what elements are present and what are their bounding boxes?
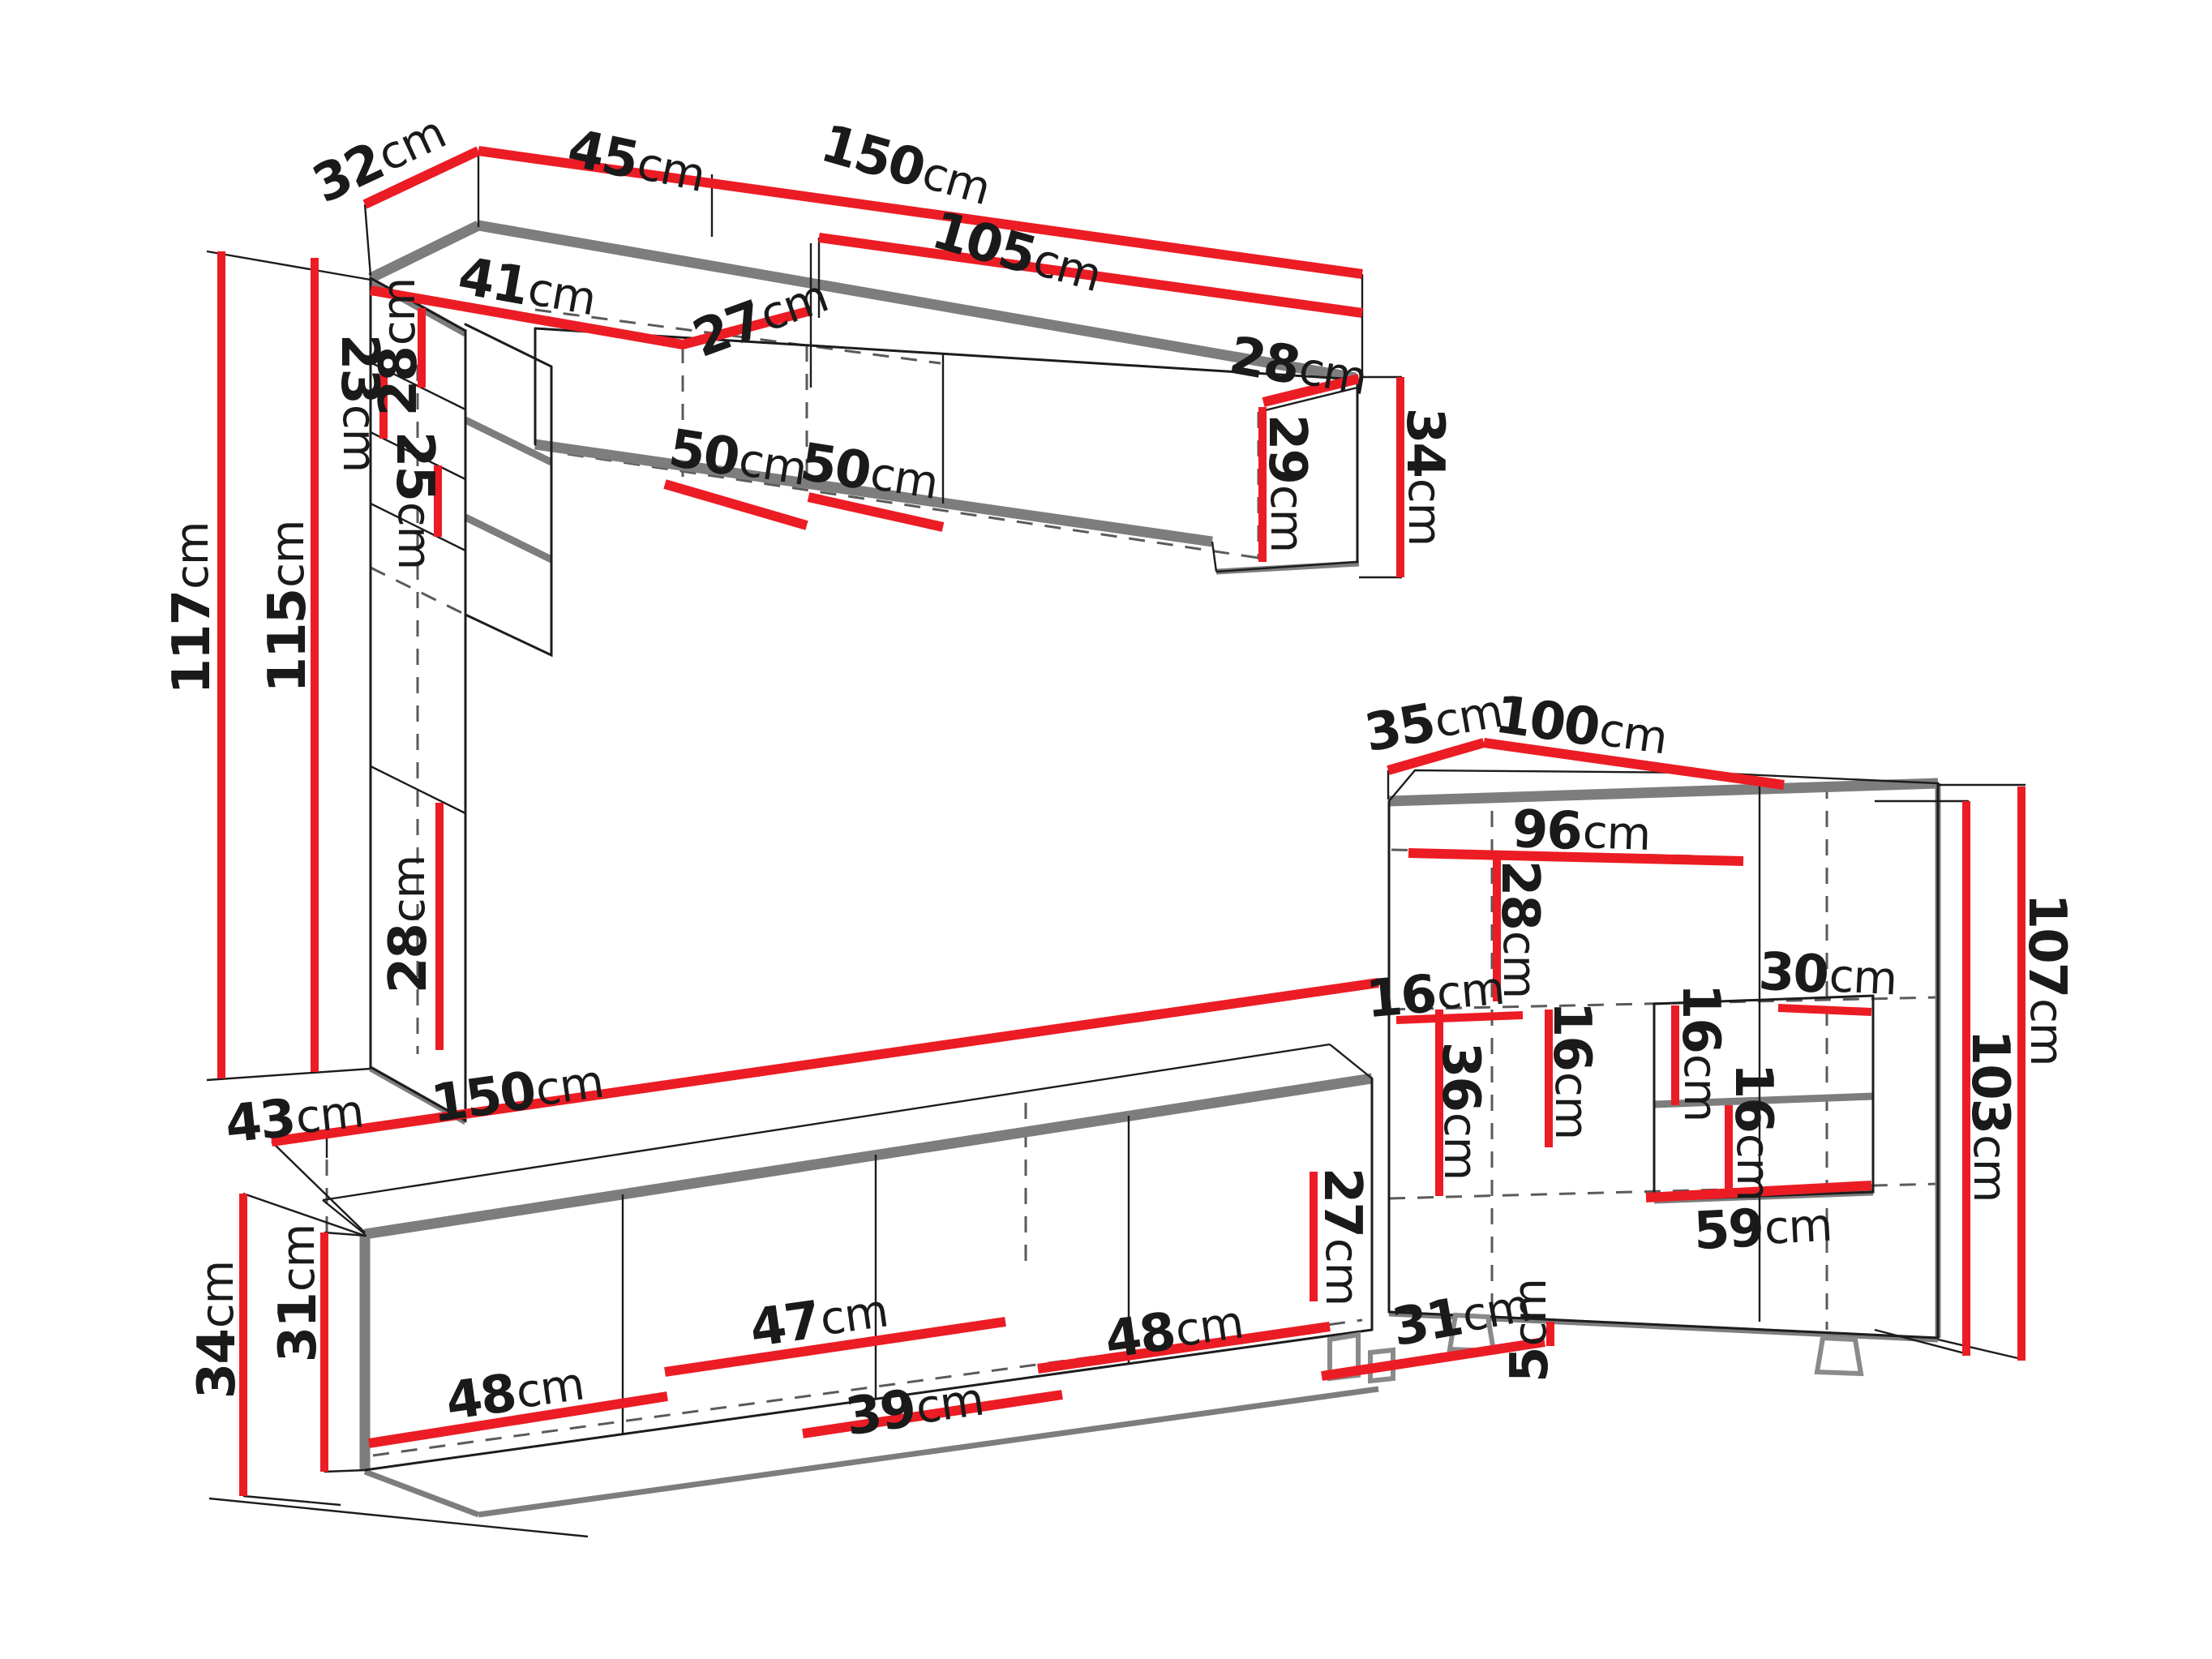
dimension-label-t27: 27cm [1312,1168,1372,1305]
dimension-value: 48 [442,1363,519,1432]
dimension-value: 45 [563,118,643,191]
dimension-unit: cm [333,405,386,472]
dimension-value: 41 [454,246,533,318]
edge-line [207,251,371,280]
dimension-label-t48a: 48cm [442,1354,587,1433]
dimension-unit: cm [388,502,441,569]
dimension-value: 27 [1312,1168,1372,1237]
dimension-unit: cm [912,1373,987,1434]
tv-stand [209,983,1393,1537]
dimension-label-w115: 115cm [258,521,318,693]
dimension-value: 31 [1388,1288,1467,1359]
dimension-unit: cm [867,447,941,509]
dimension-unit: cm [1596,703,1670,765]
dimension-value: 39 [842,1378,919,1447]
edge-line [365,204,371,276]
dimension-unit: cm [1964,1134,2017,1202]
dimension-value: 5 [1500,1348,1560,1382]
dimension-label-t34: 34cm [187,1261,247,1399]
dimension-value: 30 [1757,942,1829,1005]
dimension-label-d59: 59cm [1692,1195,1833,1262]
dimension-label-t150: 150cm [427,1052,607,1135]
dimension-value: 28 [1490,860,1550,929]
dimension-label-d35: 35cm [1361,681,1507,764]
dimension-unit: cm [817,1284,891,1346]
dimension-value: 34 [1395,408,1455,477]
dimension-unit: cm [166,522,219,589]
dimension-unit: cm [383,855,435,923]
dimension-unit: cm [1727,1134,1780,1201]
dimension-value: 16 [1723,1063,1783,1132]
dimension-unit: cm [1316,1238,1369,1305]
dimension-value: 150 [427,1061,538,1134]
edge-line [209,1498,588,1537]
dimension-unit: cm [1582,806,1652,861]
dimension-value: 34 [187,1330,247,1399]
dimension-unit: cm [1763,1198,1833,1254]
dimension-value: 31 [268,1293,328,1362]
dimension-value: 107 [2017,894,2077,997]
display-cabinet [1322,743,2026,1376]
dimension-unit: cm [2021,998,2073,1065]
dimension-value: 47 [746,1290,823,1359]
dimension-label-t47: 47cm [746,1281,891,1360]
edge-line [1875,1330,1968,1354]
dimension-line [1778,1008,1871,1012]
shadow-edge-line [365,1472,478,1515]
dimension-unit: cm [272,1224,325,1292]
dimension-value: 16 [1364,964,1438,1030]
dimension-unit: cm [532,1055,607,1117]
wall-unit-hidden-edges [371,310,1258,1054]
diagram-canvas: 32cm45cm150cm105cm41cm27cm28cm23cm25cm28… [0,0,2212,1659]
dimension-label-t43: 43cm [222,1081,366,1155]
dimension-unit: cm [1828,950,1898,1005]
furniture-dimension-diagram: 32cm45cm150cm105cm41cm27cm28cm23cm25cm28… [0,0,2212,1659]
dimension-label-t48b: 48cm [1101,1292,1246,1371]
dimension-label-d30: 30cm [1757,942,1898,1010]
edge-line [1330,1044,1372,1078]
edge-line [1212,542,1216,572]
dimension-unit: cm [1674,1054,1727,1121]
dimension-value: 59 [1692,1198,1764,1262]
dimension-unit: cm [1504,1279,1557,1346]
dimension-unit: cm [1434,1112,1487,1180]
wall-unit-shadow-edges [371,225,1359,1122]
dimension-label-d103: 103cm [1960,1030,2020,1202]
dimension-value: 43 [222,1088,297,1155]
tv-stand-dimension-lines [243,983,1378,1496]
edge-line [465,324,551,655]
dimension-value: 25 [384,431,444,500]
dimension-value: 103 [1960,1030,2020,1134]
dimension-value: 150 [814,114,930,199]
dimension-unit: cm [1545,1072,1598,1139]
dimension-value: 35 [1361,693,1439,765]
dimension-label-d100: 100cm [1491,685,1670,769]
dimension-unit: cm [191,1261,244,1328]
dimension-unit: cm [1399,478,1451,546]
edge-line [207,1069,371,1080]
dimension-value: 36 [1430,1042,1490,1111]
dimension-label-d96: 96cm [1511,799,1652,864]
dimension-unit: cm [1027,233,1107,302]
dimension-label-w28b: 28cm [379,855,439,993]
dimension-value: 96 [1511,799,1583,862]
dimension-unit: cm [512,1357,587,1419]
dimension-label-w117: 117cm [162,522,222,695]
dimension-value: 28 [379,924,439,993]
dimension-value: 105 [925,200,1041,286]
dimension-value: 16 [1541,1001,1601,1070]
display-cabinet-dimension-lines [1322,743,2021,1376]
dimension-value: 50 [665,418,743,488]
dimension-label-d107: 107cm [2017,894,2077,1066]
dimension-value: 28 [1225,326,1304,397]
dimension-value: 29 [1257,414,1317,483]
dimension-label-w105: 105cm [925,200,1108,306]
dimension-unit: cm [1261,485,1314,552]
dimension-unit: cm [1434,962,1507,1020]
dimension-label-w45: 45cm [563,118,710,206]
display-cabinet-leg [1817,1338,1861,1374]
dimension-value: 117 [162,591,222,695]
dimension-unit: cm [293,1085,366,1144]
dimension-label-d5: 5cm [1500,1279,1560,1382]
dimension-label-w27: 27cm [685,266,835,370]
dimension-value: 23 [329,334,389,403]
dimension-value: 16 [1670,984,1730,1052]
dimension-unit: cm [632,137,709,203]
dimension-unit: cm [1172,1296,1246,1357]
dimension-value: 48 [1101,1301,1178,1370]
edge-line [324,1470,367,1472]
dimension-label-d16c: 16cm [1670,984,1730,1121]
shadow-edge-line [1389,783,1938,801]
dimension-unit: cm [262,521,315,588]
dimension-value: 115 [258,589,318,693]
shadow-edge-line [465,517,551,559]
dimension-value: 50 [796,432,874,502]
tv-stand-extension-lines [209,1112,588,1537]
wall-unit-outline [371,278,1357,1121]
dimension-label-t31: 31cm [268,1224,328,1362]
